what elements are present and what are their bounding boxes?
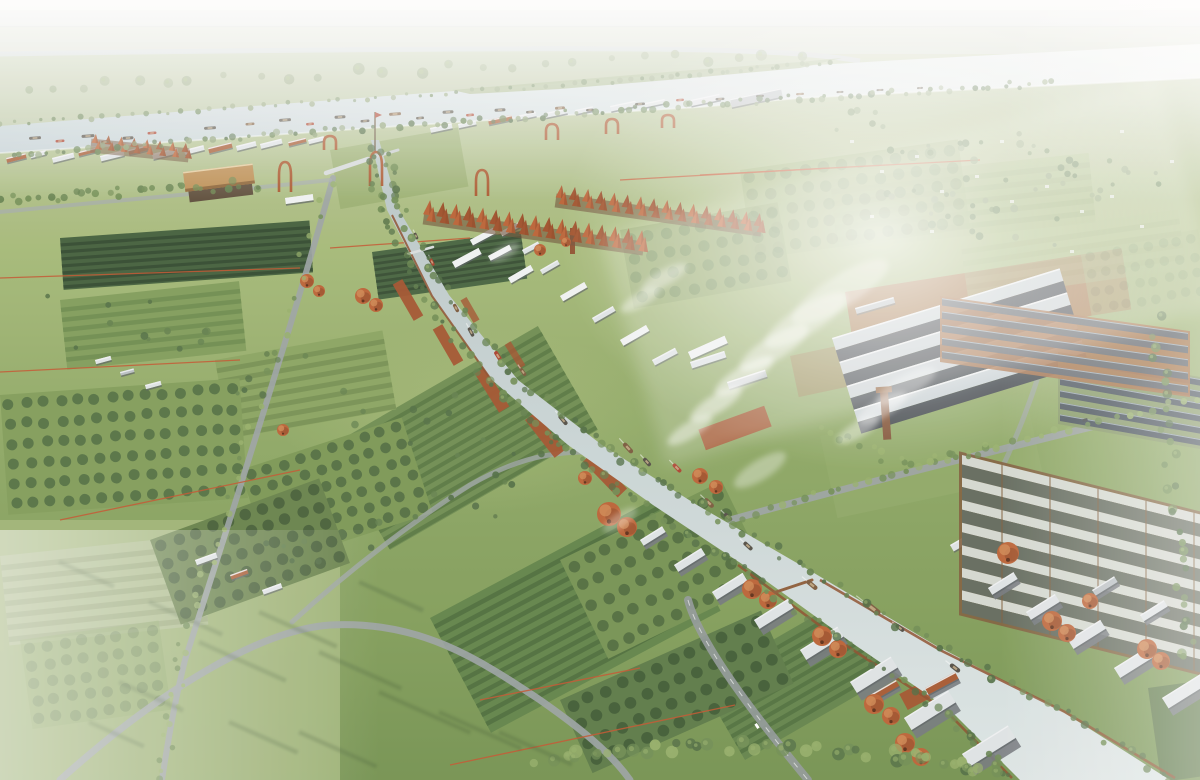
layer-atmosphere [0,0,1200,780]
warm-tint [0,0,1200,780]
aerial-render [0,0,1200,780]
scene-canvas [0,0,1200,780]
